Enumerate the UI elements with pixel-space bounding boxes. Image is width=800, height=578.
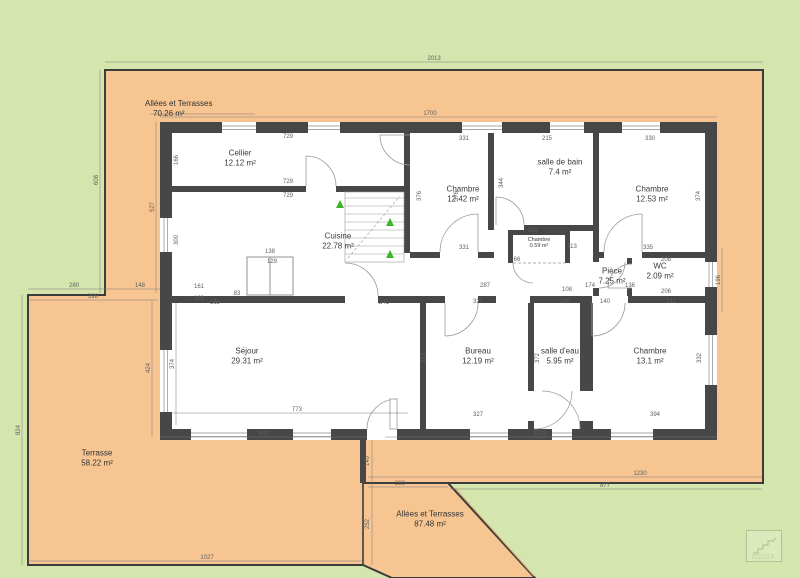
room-label-placard: Chambre0.59 m² xyxy=(528,237,551,249)
zone-name: Terrasse xyxy=(81,449,113,459)
dimension-text: 327 xyxy=(473,412,483,418)
dimension-text: 327 xyxy=(473,299,483,305)
site-plan: Allées et Terrasses 70.26 m² Terrasse 58… xyxy=(0,0,800,578)
room-label-wc: WC2.09 m² xyxy=(646,262,673,281)
zone-area: 58.22 m² xyxy=(81,458,113,468)
zone-label-alley-bottom: Allées et Terrasses 87.48 m² xyxy=(396,510,463,529)
dimension-text: 729 xyxy=(283,179,293,185)
dimension-text: 729 xyxy=(283,134,293,140)
zone-area: 70.26 m² xyxy=(145,109,212,119)
dimension-text: 330 xyxy=(645,136,655,142)
dimension-text: 331 xyxy=(459,245,469,251)
dimension-text: 66 xyxy=(514,257,521,263)
dimension-text: 372 xyxy=(535,353,541,363)
dimension-text: 113 xyxy=(567,244,577,250)
zone-label-terrasse: Terrasse 58.22 m² xyxy=(81,449,113,468)
dimension-text: 140 xyxy=(600,299,610,305)
dimension-text: 877 xyxy=(600,483,610,489)
room-label-chambre-2: Chambre12.53 m² xyxy=(636,185,669,204)
dimension-text: 138 xyxy=(265,249,275,255)
dimension-text: 424 xyxy=(146,363,152,373)
dimension-text: 398 xyxy=(88,294,98,300)
dimension-text: 824 xyxy=(16,425,22,435)
dimension-text: 376 xyxy=(417,191,423,201)
room-label-chambre-1: Chambre12.42 m² xyxy=(447,185,480,204)
room-label-sejour: Séjour29.31 m² xyxy=(231,347,263,366)
room-label-chambre-3: Chambre13.1 m² xyxy=(634,347,667,366)
dimension-text: 1230 xyxy=(633,471,646,477)
dimension-text: 335 xyxy=(643,245,653,251)
dimension-text: 1027 xyxy=(200,555,213,561)
dimension-text: 376 xyxy=(454,191,460,201)
dimension-text: 140 xyxy=(365,456,371,466)
dimension-text: 215 xyxy=(542,136,552,142)
dimension-text: 344 xyxy=(499,178,505,188)
zone-name: Allées et Terrasses xyxy=(396,510,463,520)
dimension-text: 773 xyxy=(292,407,302,413)
dimension-text: 293 xyxy=(395,481,405,487)
zone-label-alley-top: Allées et Terrasses 70.26 m² xyxy=(145,99,212,118)
dimension-text: 374 xyxy=(696,191,702,201)
dimension-text: 206 xyxy=(661,289,671,295)
room-label-bureau: Bureau12.19 m² xyxy=(462,347,494,366)
dimension-text: 632 xyxy=(259,431,269,437)
dimension-text: 83 xyxy=(234,291,241,297)
room-label-salle-d-eau: salle d'eau5.95 m² xyxy=(541,347,579,366)
dimension-text: 252 xyxy=(365,519,371,529)
dimension-text: 161 xyxy=(194,284,204,290)
dimension-text: 1700 xyxy=(423,111,436,117)
dimension-text: 129 xyxy=(267,259,277,265)
dimension-text: 287 xyxy=(480,283,490,289)
dimension-text: 211 xyxy=(666,299,676,305)
dimension-text: 174 xyxy=(585,283,595,289)
dimension-text: 1013 xyxy=(533,431,546,437)
dimension-text: 2013 xyxy=(427,56,440,62)
dimension-text: 160 xyxy=(560,299,570,305)
dimension-text: 332 xyxy=(697,353,703,363)
dimension-text: 148 xyxy=(135,283,145,289)
dimension-text: 196 xyxy=(716,275,722,285)
dimension-text: 108 xyxy=(562,287,572,293)
dimension-text: 729 xyxy=(283,193,293,199)
dimension-text: 241 xyxy=(379,300,389,306)
dimension-text: 527 xyxy=(150,202,156,212)
dimension-text: 166 xyxy=(174,155,180,165)
zone-area: 87.48 m² xyxy=(396,519,463,529)
zone-name: Allées et Terrasses xyxy=(145,99,212,109)
dimension-text: 208 xyxy=(661,257,671,263)
dimension-text: 102 xyxy=(528,228,538,234)
dimension-text: 373 xyxy=(421,353,427,363)
labels-layer: Allées et Terrasses 70.26 m² Terrasse 58… xyxy=(0,0,800,578)
dimension-text: 394 xyxy=(650,412,660,418)
dimension-text: 608 xyxy=(94,175,100,185)
room-label-salle-de-bain: salle de bain7.4 m² xyxy=(538,158,583,177)
dimension-text: 280 xyxy=(69,283,79,289)
dimension-text: 163 xyxy=(210,300,220,306)
dimension-text: 300 xyxy=(174,235,180,245)
dimension-text: 331 xyxy=(459,136,469,142)
dimension-text: 136 xyxy=(625,283,635,289)
dimension-text: 163 xyxy=(194,296,204,302)
room-label-cellier: Cellier12.12 m² xyxy=(224,149,256,168)
room-label-cuisine: Cuisine22.78 m² xyxy=(322,232,354,251)
room-label-piece: Pièce7.25 m² xyxy=(598,267,625,286)
dimension-text: 374 xyxy=(170,359,176,369)
